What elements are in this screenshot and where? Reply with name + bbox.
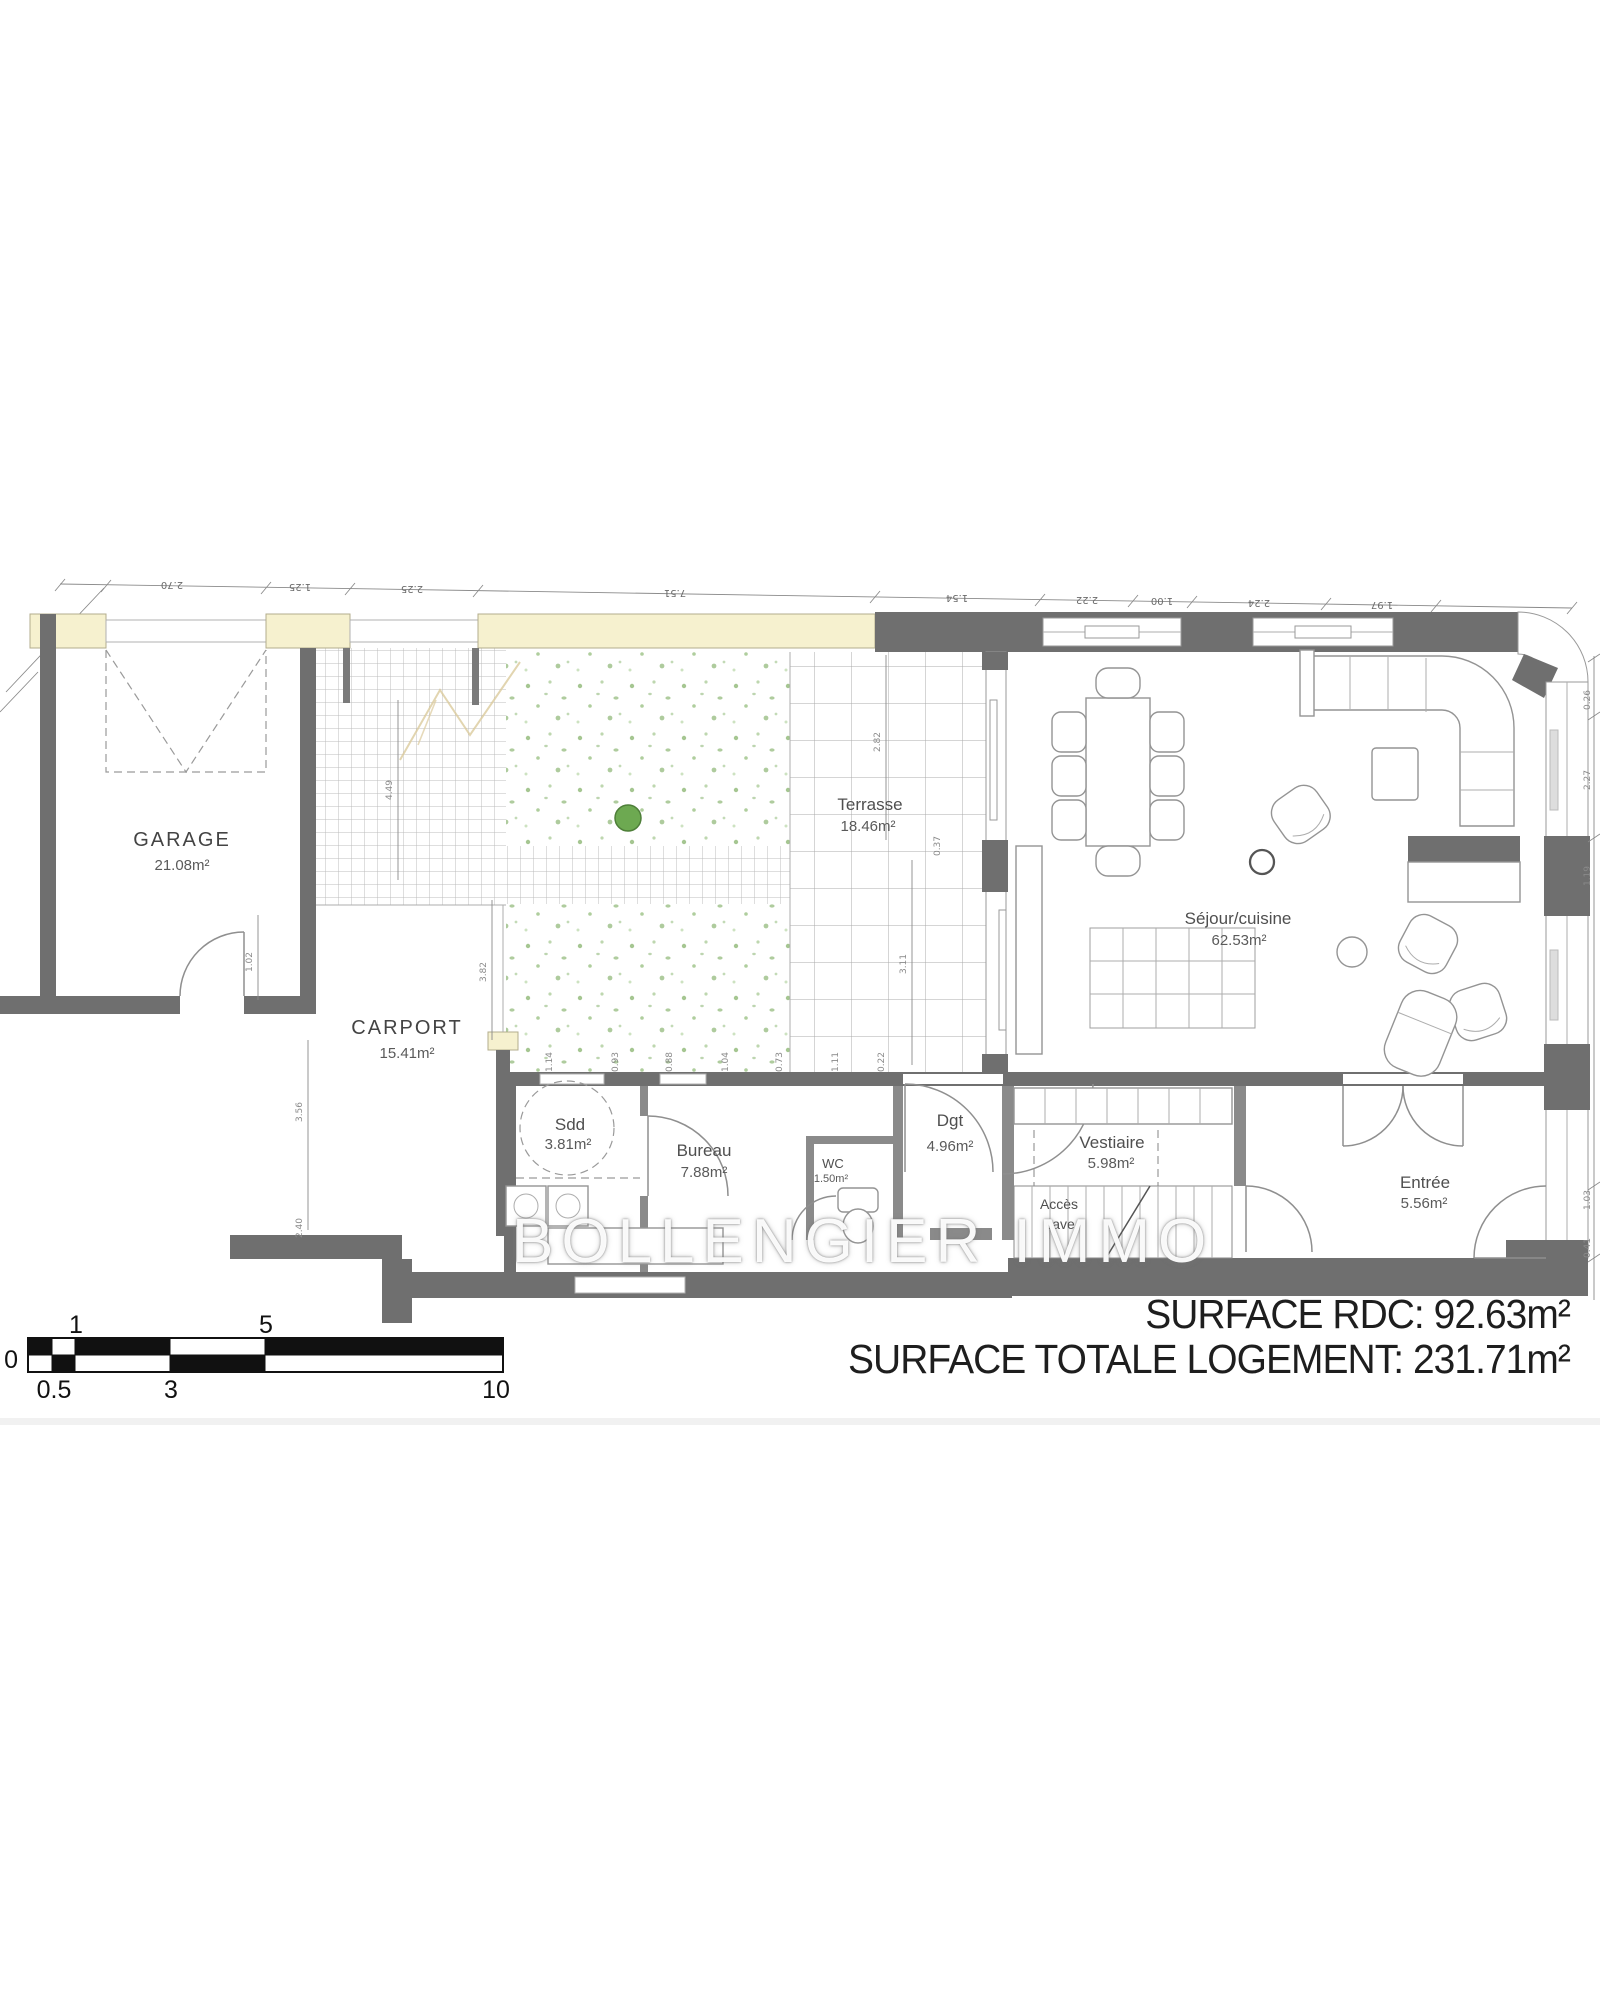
fireplace-bench xyxy=(1408,836,1520,902)
dim-bottom-3: 0.88 xyxy=(665,1052,675,1072)
garage-room xyxy=(0,614,316,1014)
dim-bottom-7: 0.22 xyxy=(877,1052,887,1072)
scale-label-5: 5 xyxy=(259,1311,273,1339)
scale-label-10: 10 xyxy=(482,1376,510,1404)
lounge-chair xyxy=(1265,779,1336,850)
dim-top-9: 1.97 xyxy=(1371,599,1393,610)
dim-left-4: 3.56 xyxy=(295,1102,305,1122)
dim-inner-3: 3.11 xyxy=(899,954,909,974)
dim-left-1: 4.49 xyxy=(385,780,395,800)
wc-label: WC xyxy=(822,1156,844,1171)
terrasse-label: Terrasse xyxy=(837,795,902,814)
carport-area: 15.41m² xyxy=(379,1045,434,1062)
dim-top-8: 2.24 xyxy=(1248,597,1270,608)
house-north-wall xyxy=(875,612,1518,652)
garage-carport-door xyxy=(180,932,244,996)
sdd-area: 3.81m² xyxy=(545,1136,592,1153)
sdd-room xyxy=(506,1081,640,1226)
agency-watermark: BOLLENGIER IMMO xyxy=(512,1206,1112,1277)
dim-right-2: 2.27 xyxy=(1583,770,1593,790)
scale-label-1: 1 xyxy=(69,1311,83,1339)
floor-plan-page: 2.70 1.25 2.25 7.51 1.54 2.22 1.00 2.24 … xyxy=(0,0,1600,1995)
garage-door xyxy=(106,650,266,772)
surface-summary: SURFACE RDC: 92.63m² SURFACE TOTALE LOGE… xyxy=(848,1292,1570,1382)
north-window xyxy=(1253,618,1393,646)
dim-top-4: 7.51 xyxy=(664,587,686,598)
garden xyxy=(506,652,790,1072)
bureau-label: Bureau xyxy=(677,1141,732,1160)
bureau-area: 7.88m² xyxy=(681,1164,728,1181)
surface-rdc: SURFACE RDC: 92.63m² xyxy=(848,1292,1570,1337)
terrace-tiling xyxy=(790,652,986,1072)
dim-bottom-5: 0.73 xyxy=(775,1052,785,1072)
dining-set xyxy=(1052,668,1184,876)
dim-top-7: 1.00 xyxy=(1151,595,1173,606)
scale-label-0: 0 xyxy=(4,1346,18,1374)
garage-area: 21.08m² xyxy=(154,857,209,874)
entree-label: Entrée xyxy=(1400,1173,1450,1192)
lounge-chair xyxy=(1393,909,1463,979)
north-window xyxy=(1043,618,1181,646)
dim-right-5: 0.41 xyxy=(1583,1238,1593,1258)
wardrobe xyxy=(1014,1088,1232,1124)
dim-bottom-4: 1.04 xyxy=(721,1052,731,1072)
dim-left-5: 2.40 xyxy=(295,1218,305,1238)
terrasse-area: 18.46m² xyxy=(840,818,895,835)
dim-top-6: 2.22 xyxy=(1076,594,1098,605)
floor-plan-drawing: 2.70 1.25 2.25 7.51 1.54 2.22 1.00 2.24 … xyxy=(0,0,1600,1995)
dgt-label: Dgt xyxy=(937,1111,964,1130)
vestiaire-area: 5.98m² xyxy=(1088,1155,1135,1172)
dim-top-2: 1.25 xyxy=(289,581,311,592)
dim-left-3: 3.82 xyxy=(479,962,489,982)
dgt-area: 4.96m² xyxy=(927,1138,974,1155)
dim-top-3: 2.25 xyxy=(401,583,423,594)
surface-totale: SURFACE TOTALE LOGEMENT: 231.71m² xyxy=(848,1337,1570,1382)
scale-bar: 1 5 0 0.5 3 10 xyxy=(4,1311,510,1404)
sejour-area: 62.53m² xyxy=(1211,932,1266,949)
dim-inner-1: 2.82 xyxy=(873,732,883,752)
dim-bottom-2: 0.93 xyxy=(611,1052,621,1072)
page-divider xyxy=(0,1418,1600,1425)
wc-area: 1.50m² xyxy=(814,1173,849,1185)
west-glass-wall xyxy=(982,652,1008,1072)
tree-icon xyxy=(615,805,641,831)
dim-inner-2: 0.37 xyxy=(933,836,943,856)
dim-right-1: 0.26 xyxy=(1583,690,1593,710)
dim-right-4: 1.03 xyxy=(1583,1190,1593,1210)
dim-top-1: 2.70 xyxy=(161,579,183,590)
stool-icon xyxy=(1250,850,1274,874)
carport-south-wall xyxy=(230,1235,412,1323)
dim-bottom-1: 1.14 xyxy=(545,1052,555,1072)
dim-top-5: 1.54 xyxy=(946,592,968,603)
side-table xyxy=(1337,937,1367,967)
entree-area: 5.56m² xyxy=(1401,1195,1448,1212)
dim-right-3: 1.19 xyxy=(1583,866,1593,886)
dim-left-2: 1.02 xyxy=(245,952,255,972)
house-east-wall xyxy=(1506,682,1590,1296)
carport-label: CARPORT xyxy=(351,1017,462,1039)
dim-bottom-6: 1.11 xyxy=(831,1052,841,1072)
garage-label: GARAGE xyxy=(133,829,231,851)
kitchen-counter xyxy=(1016,846,1042,1054)
entree-room xyxy=(1246,1086,1546,1258)
sdd-label: Sdd xyxy=(555,1115,585,1134)
scale-label-05: 0.5 xyxy=(37,1376,72,1404)
sejour-label: Séjour/cuisine xyxy=(1185,909,1292,928)
scale-label-3: 3 xyxy=(164,1376,178,1404)
vestiaire-label: Vestiaire xyxy=(1079,1133,1144,1152)
coffee-table xyxy=(1372,748,1418,800)
